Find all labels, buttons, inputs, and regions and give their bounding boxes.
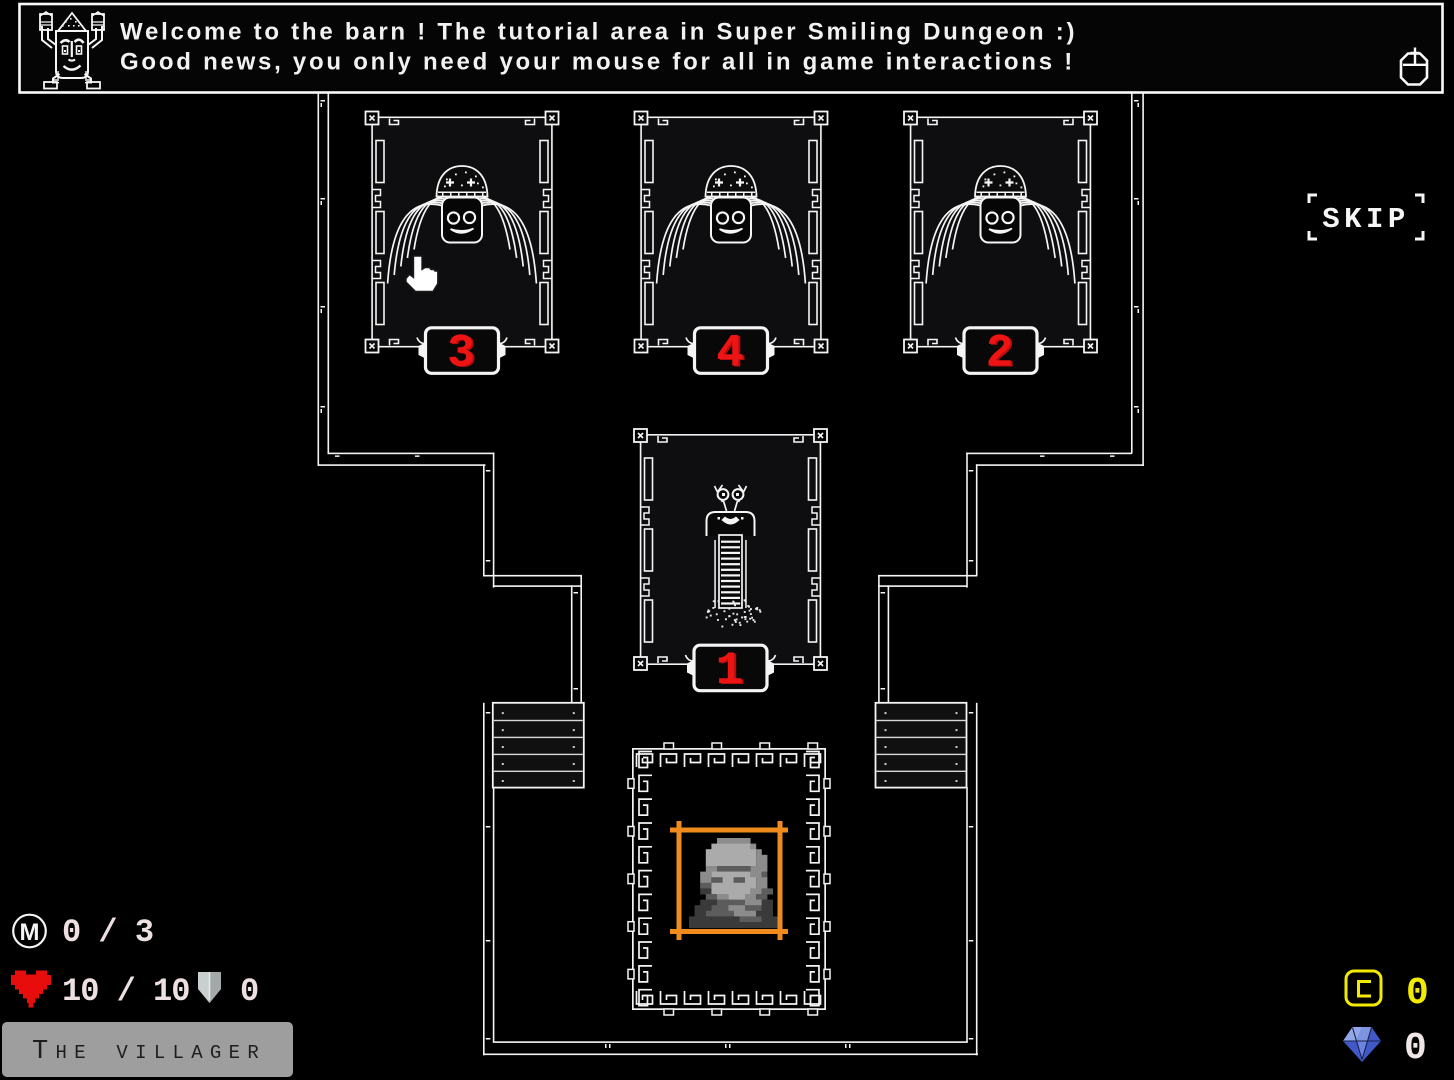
svg-text:1: 1: [716, 645, 744, 697]
svg-text:0: 0: [1406, 972, 1429, 1015]
svg-text:3: 3: [447, 328, 475, 380]
svg-text:Good news, you only need your: Good news, you only need your mouse for …: [120, 49, 1075, 76]
svg-text:2: 2: [986, 328, 1014, 380]
svg-text:0: 0: [1404, 1027, 1427, 1070]
svg-text:SKIP: SKIP: [1322, 203, 1410, 236]
svg-text:0 / 3: 0 / 3: [62, 914, 153, 951]
svg-text:4: 4: [716, 328, 744, 380]
svg-text:0: 0: [240, 973, 259, 1010]
svg-text:10 / 10: 10 / 10: [62, 973, 189, 1010]
svg-text:M: M: [20, 919, 40, 946]
svg-text:The villager: The villager: [32, 1037, 266, 1067]
svg-text:Welcome to the barn ! The tuto: Welcome to the barn ! The tutorial area …: [120, 19, 1077, 46]
